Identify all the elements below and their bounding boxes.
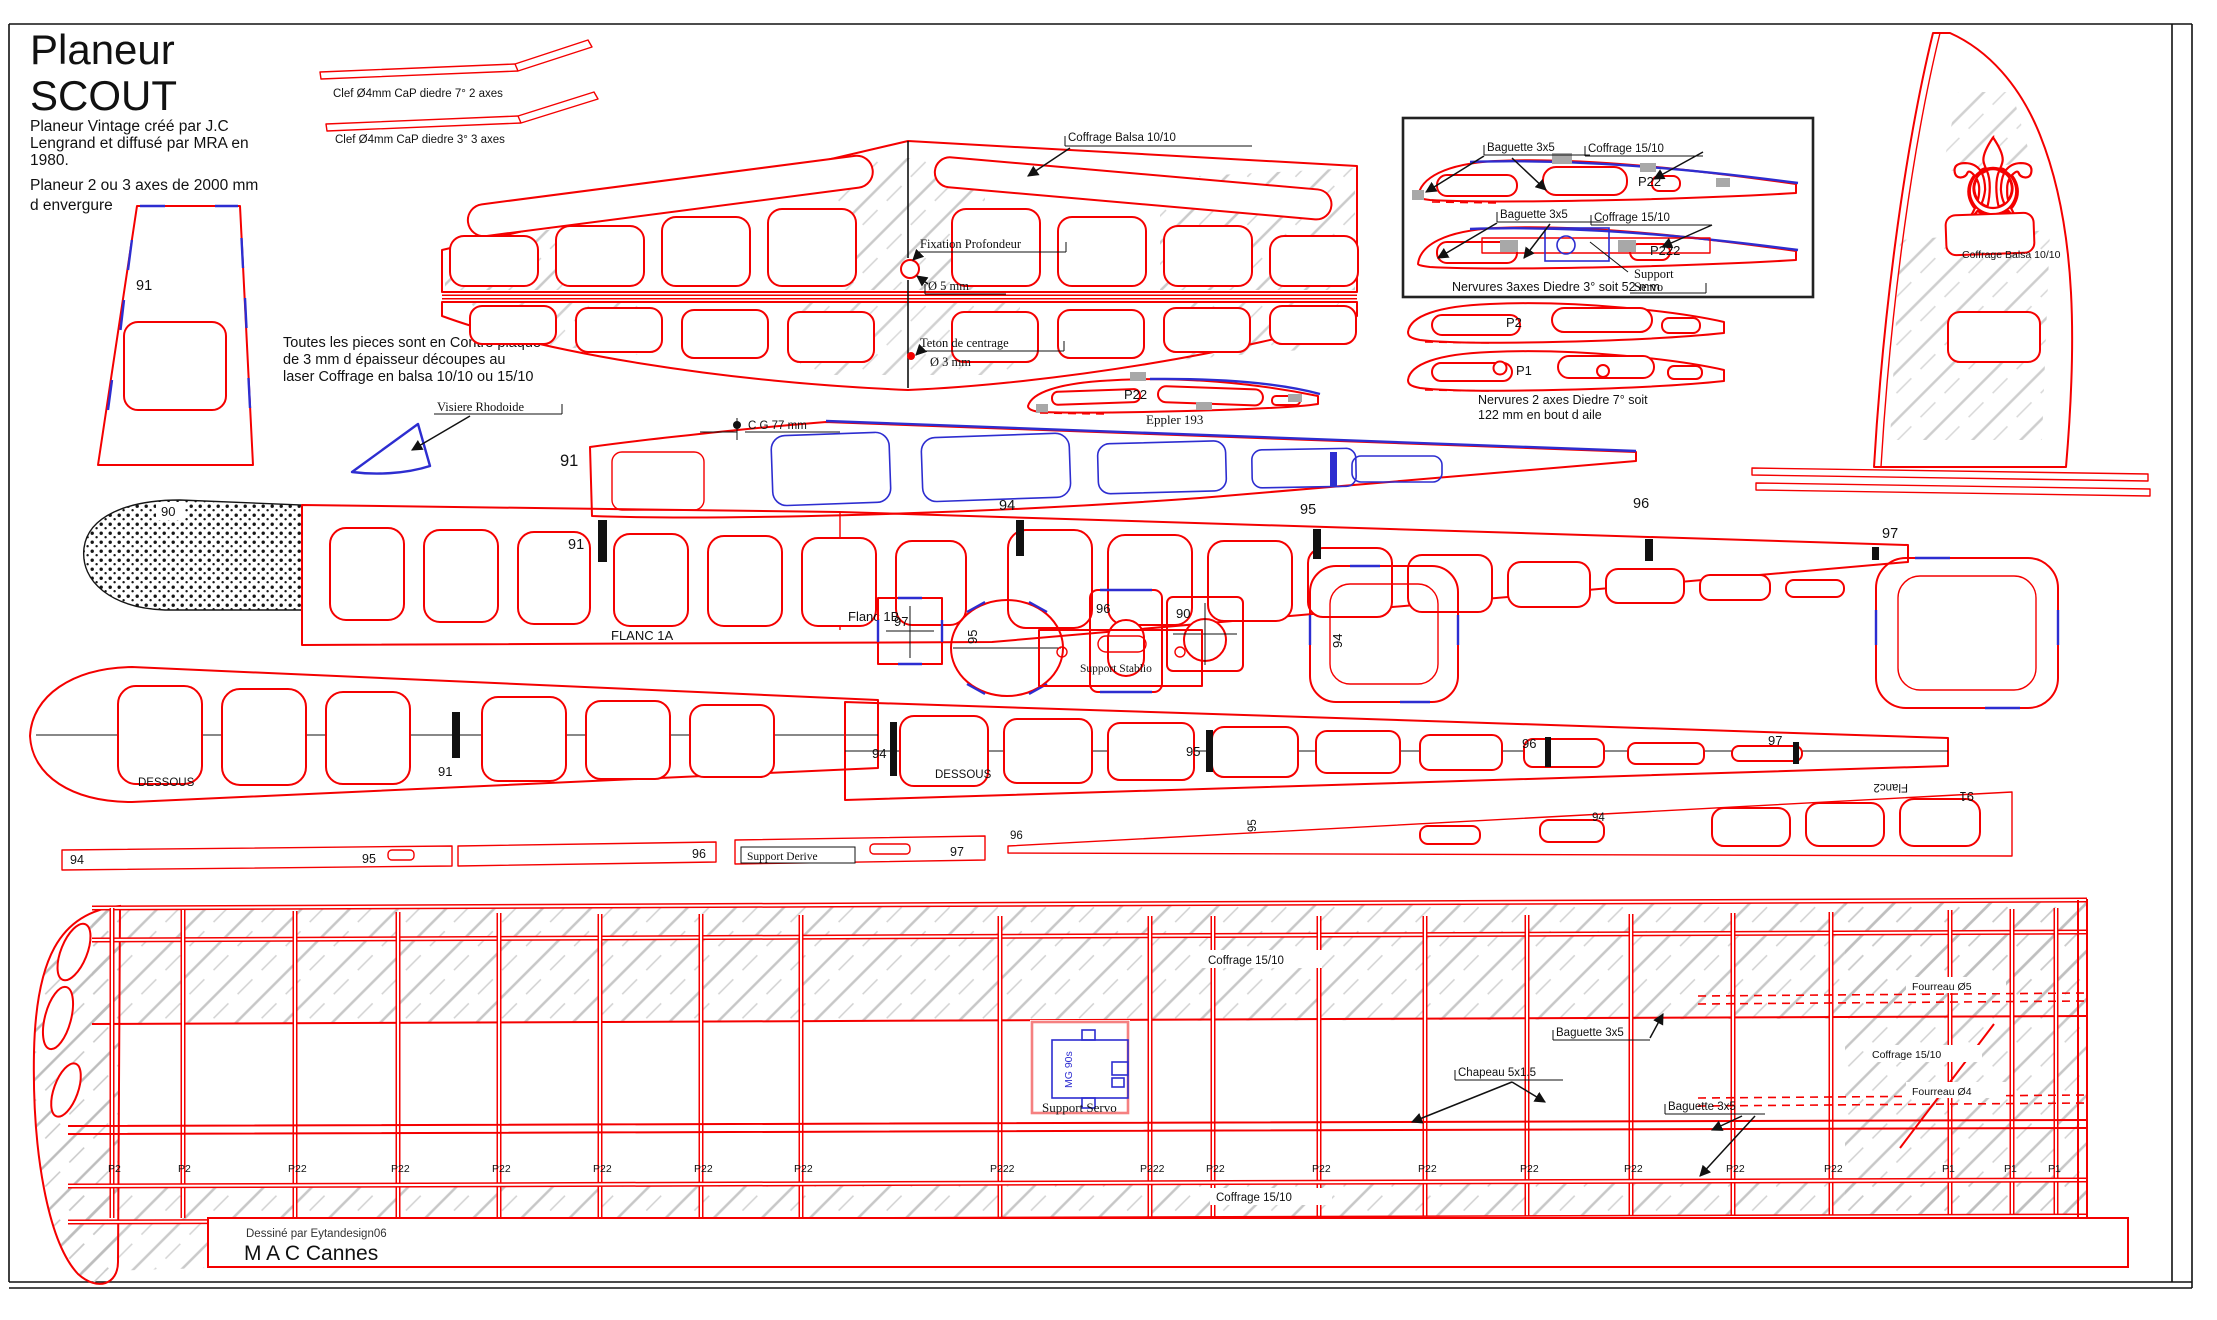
strip-95-label: 95 bbox=[362, 852, 376, 866]
flanc2-name: Flanc2 bbox=[1873, 781, 1908, 793]
fin-coffrage-label: Coffrage Balsa 10/10 bbox=[1962, 249, 2061, 261]
eppler-name-label: Eppler 193 bbox=[1146, 412, 1203, 427]
wing-baguette-top-label: Baguette 3x5 bbox=[1556, 1027, 1624, 1039]
visiere-label: Visiere Rhodoide bbox=[437, 400, 525, 414]
rib-label: P22 bbox=[794, 1163, 813, 1175]
dessous-right-94: 94 bbox=[872, 746, 886, 761]
clef-3axes-label: Clef Ø4mm CaP diedre 3° 3 axes bbox=[335, 134, 505, 146]
former-95: 95 bbox=[965, 630, 980, 644]
stabilizer-drawing: Coffrage Balsa 10/10 Fixation Profondeur… bbox=[442, 132, 1358, 390]
wing-baguette-bottom-label: Baguette 3x5 bbox=[1668, 1101, 1736, 1113]
wing-spar bbox=[68, 1120, 2087, 1134]
rib1-coffrage-label: Coffrage 15/10 bbox=[1588, 143, 1664, 155]
p2-label: P2 bbox=[1506, 315, 1522, 330]
dessous-right-95: 95 bbox=[1186, 744, 1200, 759]
subtitle-line: Lengrand et diffusé par MRA en bbox=[30, 135, 249, 152]
flanc2-96: 96 bbox=[1010, 830, 1023, 842]
wing-joiner-keys: Clef Ø4mm CaP diedre 7° 2 axes Clef Ø4mm… bbox=[320, 40, 598, 146]
rib-label: P22 bbox=[1624, 1163, 1643, 1175]
note-line: de 3 mm d épaisseur découpes au bbox=[283, 352, 505, 368]
centering-pin-dot bbox=[907, 352, 915, 360]
station-94: 94 bbox=[999, 498, 1015, 514]
stab-coffrage-label: Coffrage Balsa 10/10 bbox=[1068, 132, 1176, 144]
rib-label: P22 bbox=[391, 1163, 410, 1175]
support-servo-label-line1: Support bbox=[1634, 267, 1674, 281]
joint-mark bbox=[1872, 547, 1879, 560]
strip-96-label: 96 bbox=[692, 847, 706, 861]
rib-label: P22 bbox=[1312, 1163, 1331, 1175]
elevator-fixation-hole bbox=[901, 260, 919, 278]
dia5-label: Ø 5 mm bbox=[928, 279, 969, 293]
clef-2axes-part bbox=[320, 40, 592, 79]
wing-coffrage-tip-label: Coffrage 15/10 bbox=[1872, 1049, 1941, 1061]
subtitle-line: Planeur 2 ou 3 axes de 2000 mm bbox=[30, 177, 258, 194]
page-title-line1: Planeur bbox=[30, 26, 175, 73]
dia3-label: Ø 3 mm bbox=[930, 355, 971, 369]
fuselage-top-view: C G 77 mm 91 Visiere Rhodoide bbox=[352, 400, 1636, 517]
strip-97-label: 97 bbox=[950, 845, 964, 859]
station-95: 95 bbox=[1300, 502, 1316, 518]
dessous-left-91: 91 bbox=[438, 764, 452, 779]
flanc2-94: 94 bbox=[1592, 812, 1605, 824]
rib-label: P22 bbox=[694, 1163, 713, 1175]
club-credit: M A C Cannes bbox=[244, 1242, 378, 1265]
dessous-right-label: DESSOUS bbox=[935, 769, 992, 781]
strip-96 bbox=[458, 842, 716, 866]
wing-support-servo-label: Support Servo bbox=[1042, 1100, 1117, 1115]
part-number-91-flanc: 91 bbox=[568, 537, 584, 553]
subtitle-line: 1980. bbox=[30, 152, 69, 169]
joint-mark bbox=[1016, 520, 1024, 556]
dessous-left-label: DESSOUS bbox=[138, 777, 195, 789]
tip-ribs-caption-line2: 122 mm en bout d aile bbox=[1478, 408, 1602, 422]
fourreau5-label: Fourreau Ø5 bbox=[1912, 981, 1972, 993]
part-number-90: 90 bbox=[161, 504, 175, 519]
joint-mark bbox=[1793, 742, 1799, 764]
station-97: 97 bbox=[1882, 526, 1898, 542]
fixation-label: Fixation Profondeur bbox=[920, 237, 1022, 251]
wing-rib-labels: P2P2P22P22P22P22P22P22P222P222P22P22P22P… bbox=[108, 1163, 2061, 1175]
rib-label: P1 bbox=[1942, 1163, 1955, 1175]
rib-label: P22 bbox=[1206, 1163, 1225, 1175]
rib-label: P222 bbox=[990, 1163, 1015, 1175]
former-94: 94 bbox=[1330, 634, 1345, 648]
cg-label: C G 77 mm bbox=[748, 420, 807, 432]
former-96: 96 bbox=[1096, 601, 1110, 616]
plan-sheet: Planeur SCOUT Planeur Vintage créé par J… bbox=[0, 0, 2217, 1320]
rib-label: P2 bbox=[178, 1163, 191, 1175]
support-stablio-label: Support Stablio bbox=[1080, 663, 1152, 675]
eppler-rib-drawing: P22 Eppler 193 bbox=[1028, 372, 1320, 427]
plan-drawing: Planeur SCOUT Planeur Vintage créé par J… bbox=[0, 0, 2217, 1320]
fuselage-top-outline bbox=[590, 422, 1636, 517]
flanc2-95: 95 bbox=[1247, 819, 1259, 832]
station-96: 96 bbox=[1633, 496, 1649, 512]
rib-label: P22 bbox=[1520, 1163, 1539, 1175]
title-block: Planeur SCOUT Planeur Vintage créé par J… bbox=[30, 26, 258, 214]
leading-edge-stick bbox=[1756, 483, 2150, 496]
rib1-ref: P22 bbox=[1638, 174, 1661, 189]
chapeau-label: Chapeau 5x1.5 bbox=[1458, 1067, 1536, 1079]
joint-mark bbox=[452, 712, 460, 758]
note-line: laser Coffrage en balsa 10/10 ou 15/10 bbox=[283, 369, 533, 385]
joint-mark bbox=[890, 722, 897, 776]
rib-label: P222 bbox=[1140, 1163, 1165, 1175]
joint-mark bbox=[598, 520, 607, 562]
teton-label: Teton de centrage bbox=[920, 336, 1009, 350]
p1-label: P1 bbox=[1516, 363, 1532, 378]
wing-coffrage-bottom-label: Coffrage 15/10 bbox=[1216, 1192, 1292, 1204]
rib-detail-box: Baguette 3x5 Coffrage 15/10 P22 Baguette… bbox=[1403, 118, 1813, 297]
rib-label: P1 bbox=[2004, 1163, 2017, 1175]
subtitle-line: d envergure bbox=[30, 197, 113, 214]
flanc1b-label: Flanc 1B bbox=[848, 609, 899, 624]
rib-label: P22 bbox=[288, 1163, 307, 1175]
flanc1a-label: FLANC 1A bbox=[611, 628, 673, 643]
rib-label: P22 bbox=[1824, 1163, 1843, 1175]
servo-model-label: MG 90s bbox=[1063, 1051, 1075, 1088]
designer-credit: Dessiné par Eytandesign06 bbox=[246, 1228, 387, 1240]
tip-ribs-drawing: P2 P1 Nervures 2 axes Diedre 7° soit 122… bbox=[1408, 303, 1724, 422]
joint-mark bbox=[1206, 730, 1213, 772]
fin-drawing: ⚜ Coffrage Balsa 10/10 bbox=[1752, 33, 2150, 496]
joint-mark bbox=[1313, 529, 1321, 559]
dessous-right-96: 96 bbox=[1522, 736, 1536, 751]
former-97: 97 bbox=[894, 614, 908, 629]
rib-label: P22 bbox=[1418, 1163, 1437, 1175]
rib2-ref: P222 bbox=[1650, 243, 1680, 258]
rib-label: P1 bbox=[2048, 1163, 2061, 1175]
support-derive-label: Support Derive bbox=[747, 851, 818, 863]
detail-box-caption: Nervures 3axes Diedre 3° soit 52 mm bbox=[1452, 280, 1660, 294]
joint-mark bbox=[1645, 539, 1653, 561]
rib1-baguette-label: Baguette 3x5 bbox=[1487, 142, 1555, 154]
fuselage-top-front-piece: 91 bbox=[98, 206, 253, 465]
former-90: 90 bbox=[1176, 606, 1190, 621]
rib2-coffrage-label: Coffrage 15/10 bbox=[1594, 212, 1670, 224]
part-number-91-side: 91 bbox=[560, 452, 578, 470]
credits-box bbox=[208, 1218, 2128, 1267]
dessous-views: Support Stablio 91 DESSOUS 94 95 96 97 D… bbox=[30, 630, 1948, 802]
part-number-91: 91 bbox=[136, 278, 152, 294]
nose-piece-90 bbox=[84, 500, 302, 610]
rib-label: P2 bbox=[108, 1163, 121, 1175]
dessous-right-97: 97 bbox=[1768, 733, 1782, 748]
joint-mark bbox=[1545, 737, 1551, 767]
wing-coffrage-top-label: Coffrage 15/10 bbox=[1208, 955, 1284, 967]
rib2-baguette-label: Baguette 3x5 bbox=[1500, 209, 1568, 221]
strip-94-label: 94 bbox=[70, 853, 84, 867]
canopy-visor-shape bbox=[352, 424, 430, 474]
page-title-line2: SCOUT bbox=[30, 72, 177, 119]
fourreau4-label: Fourreau Ø4 bbox=[1912, 1086, 1972, 1098]
fuselage-side-view: 90 91 94 95 96 97 FLANC 1A Flanc 1B bbox=[84, 496, 1908, 645]
tip-ribs-caption-line1: Nervures 2 axes Diedre 7° soit bbox=[1478, 393, 1648, 407]
clef-2axes-label: Clef Ø4mm CaP diedre 7° 2 axes bbox=[333, 88, 503, 100]
flanc2-91: 91 bbox=[1960, 789, 1974, 804]
rib-label: P22 bbox=[492, 1163, 511, 1175]
eppler-ref-label: P22 bbox=[1124, 387, 1147, 402]
subtitle-line: Planeur Vintage créé par J.C bbox=[30, 118, 229, 135]
credits-block: Dessiné par Eytandesign06 M A C Cannes bbox=[208, 1218, 2128, 1267]
rib-label: P22 bbox=[593, 1163, 612, 1175]
rib-label: P22 bbox=[1726, 1163, 1745, 1175]
leading-edge-stick bbox=[1752, 468, 2148, 481]
